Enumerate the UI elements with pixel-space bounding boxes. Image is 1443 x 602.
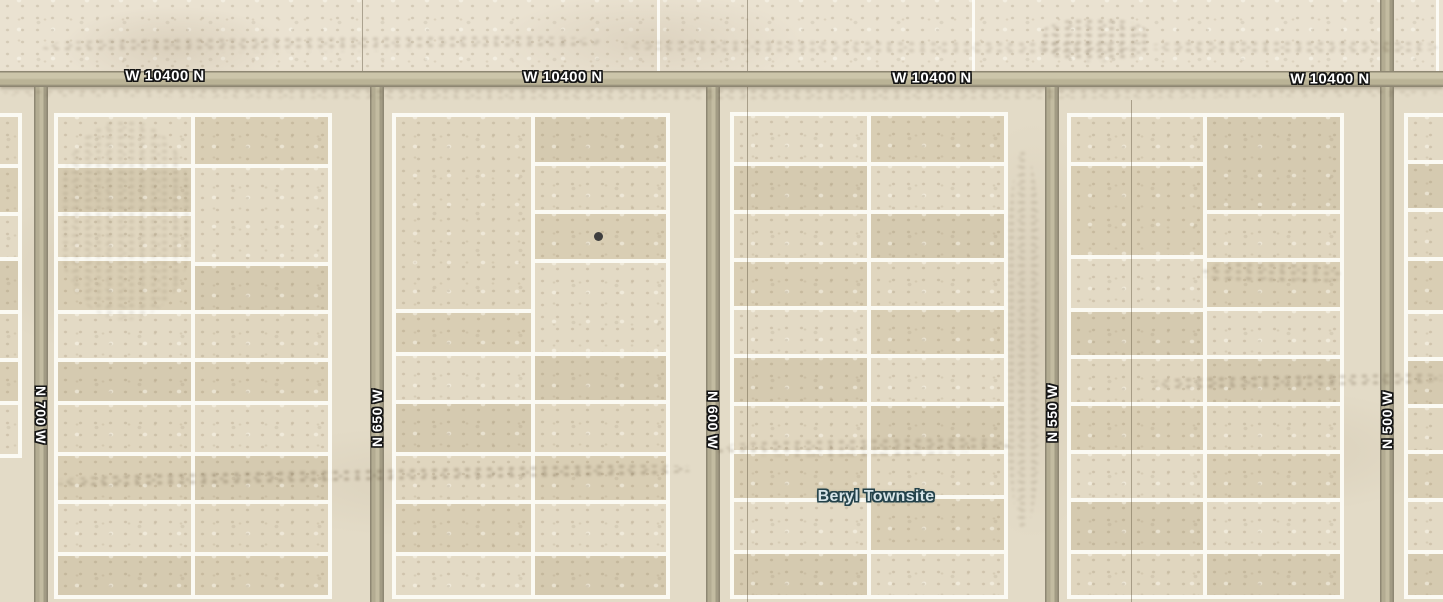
parcel-lot (535, 263, 666, 352)
parcel-lot (1207, 311, 1340, 355)
parcel-lot (1408, 117, 1443, 160)
parcel-lot (1408, 212, 1443, 257)
parcel-lot (871, 214, 1004, 258)
parcel-lot (1071, 117, 1203, 162)
parcel-lot (734, 116, 867, 162)
parcel-lot (1207, 554, 1340, 595)
parcel-lot (734, 554, 867, 595)
road-n-500-w (1380, 87, 1394, 602)
parcel-lot (871, 554, 1004, 595)
parcel-lot (396, 504, 531, 552)
parcel-block (1067, 113, 1344, 599)
parcel-lot (58, 261, 191, 310)
parcel-lot (734, 262, 867, 306)
parcel-lot (535, 117, 666, 162)
parcel-lot (1207, 502, 1340, 550)
parcel-lot (1408, 454, 1443, 498)
parcel-block (730, 112, 1008, 599)
parcel-lot (1408, 554, 1443, 595)
parcel-lot (734, 502, 867, 550)
section-hairline (1131, 100, 1132, 602)
parcel-lot (58, 556, 191, 595)
parcel-lot (195, 314, 328, 358)
parcel-lot (535, 166, 666, 210)
parcel-lot (58, 314, 191, 358)
section-line (1436, 0, 1439, 71)
parcel-lot (1207, 454, 1340, 498)
parcel-lot (396, 456, 531, 500)
parcel-lot (396, 117, 531, 309)
parcel-lot (871, 406, 1004, 450)
road-n-700-w (34, 87, 48, 602)
parcel-lot (871, 262, 1004, 306)
parcel-lot (535, 504, 666, 552)
parcel-lot (1408, 361, 1443, 404)
parcel-lot (58, 456, 191, 500)
road-n-500-w-north-stub (1380, 0, 1394, 71)
parcel-lot (58, 362, 191, 401)
parcel-block (0, 113, 22, 458)
poi-dot-marker (594, 232, 603, 241)
parcel-lot (1408, 261, 1443, 310)
parcel-lot (1408, 314, 1443, 357)
parcel-lot (734, 358, 867, 402)
parcel-lot (1207, 406, 1340, 450)
parcel-lot (1408, 502, 1443, 550)
parcel-lot (871, 310, 1004, 354)
parcel-lot (871, 499, 1004, 550)
satellite-map-canvas[interactable]: W 10400 NW 10400 NW 10400 NW 10400 NN 70… (0, 0, 1443, 602)
parcel-lot (195, 266, 328, 310)
parcel-lot (734, 310, 867, 354)
parcel-lot (1207, 117, 1340, 210)
parcel-lot (0, 216, 18, 257)
parcel-lot (58, 168, 191, 212)
parcel-lot (535, 556, 666, 595)
road-n-550-w (1045, 87, 1059, 602)
parcel-lot (396, 313, 531, 352)
parcel-lot (58, 117, 191, 164)
parcel-lot (1071, 406, 1203, 450)
parcel-lot (396, 356, 531, 400)
parcel-lot (535, 404, 666, 452)
parcel-lot (535, 456, 666, 500)
parcel-lot (0, 168, 18, 212)
section-hairline (362, 0, 363, 71)
parcel-lot (195, 504, 328, 552)
parcel-lot (1207, 262, 1340, 307)
parcel-lot (1071, 502, 1203, 550)
parcel-lot (396, 556, 531, 595)
parcel-block (392, 113, 670, 599)
parcel-lot (195, 168, 328, 262)
parcel-lot (1071, 312, 1203, 355)
parcel-lot (195, 362, 328, 401)
parcel-lot (0, 405, 18, 454)
parcel-lot (734, 406, 867, 450)
parcel-lot (195, 556, 328, 595)
parcel-lot (871, 116, 1004, 162)
parcel-lot (195, 117, 328, 164)
parcel-lot (1071, 166, 1203, 255)
parcel-lot (1408, 408, 1443, 450)
parcel-lot (195, 456, 328, 500)
parcel-lot (1071, 554, 1203, 595)
terrain-north-band (0, 0, 1443, 71)
parcel-lot (58, 504, 191, 552)
parcel-lot (0, 117, 18, 164)
parcel-lot (195, 405, 328, 452)
parcel-lot (1071, 359, 1203, 402)
road-n-650-w (370, 87, 384, 602)
parcel-lot (734, 214, 867, 258)
parcel-lot (734, 454, 867, 498)
parcel-lot (1071, 454, 1203, 498)
trail-smudge (0, 88, 1443, 99)
parcel-block (54, 113, 332, 599)
parcel-lot (871, 454, 1004, 495)
parcel-lot (1071, 259, 1203, 308)
parcel-lot (1207, 214, 1340, 258)
parcel-block (1404, 113, 1443, 599)
section-hairline (747, 0, 748, 602)
trail-smudge (1006, 150, 1042, 530)
parcel-lot (1408, 164, 1443, 208)
parcel-lot (396, 404, 531, 452)
parcel-lot (0, 362, 18, 401)
road-n-600-w (706, 87, 720, 602)
parcel-lot (58, 405, 191, 452)
parcel-lot (871, 166, 1004, 210)
parcel-lot (0, 261, 18, 310)
parcel-lot (0, 314, 18, 358)
parcel-lot (535, 356, 666, 400)
parcel-lot (734, 166, 867, 210)
parcel-lot (1207, 359, 1340, 402)
section-line (657, 0, 660, 71)
parcel-lot (871, 358, 1004, 402)
road-w-10400-n (0, 71, 1443, 87)
parcel-lot (58, 216, 191, 257)
section-line (972, 0, 975, 71)
